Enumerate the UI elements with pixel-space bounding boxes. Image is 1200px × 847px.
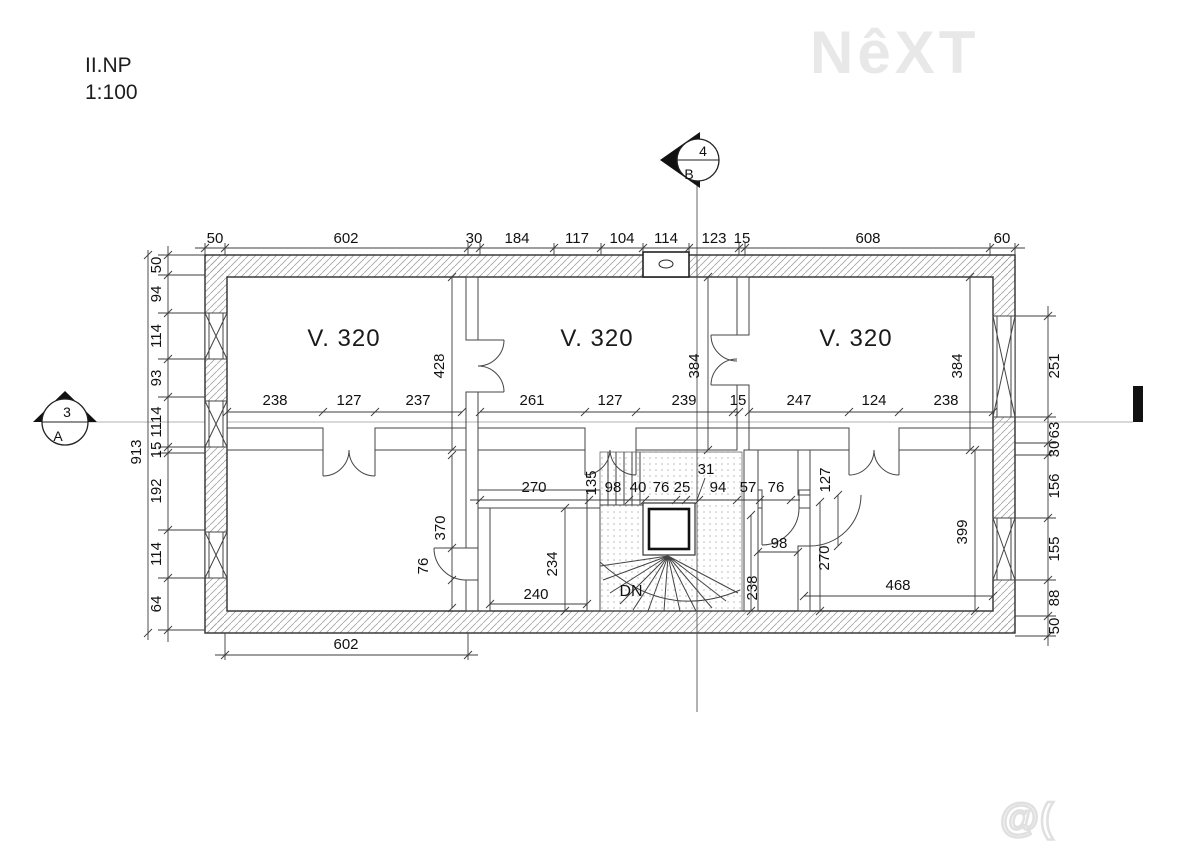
section-number: 3 [63, 404, 71, 420]
dim-label: 93 [148, 370, 165, 387]
dim-label: 15 [730, 392, 747, 409]
room-label: V. 320 [307, 325, 380, 352]
dim-label: 399 [954, 519, 971, 544]
window-left-3 [205, 532, 227, 578]
room-3: V. 320 247 124 238 384 [745, 273, 997, 454]
dim-label: 60 [994, 230, 1011, 247]
dim-label: 270 [521, 479, 546, 496]
window-right-1 [993, 316, 1015, 417]
door-room1-room2 [478, 340, 504, 392]
dim-label: 468 [885, 577, 910, 594]
dim-chain-right: 251 63 30 156 155 88 50 [1015, 306, 1063, 646]
dim-label: 31 [698, 461, 715, 478]
dim-label: 238 [744, 575, 761, 600]
dim-label: 270 [816, 545, 833, 570]
dim-label: 114 [148, 324, 165, 348]
dim-label: 602 [333, 636, 358, 653]
dim-label: 25 [674, 479, 691, 496]
dim-small-room: 370 76 240 234 [415, 451, 591, 615]
dim-label: 608 [855, 230, 880, 247]
dim-label: 1114 [148, 406, 165, 437]
dim-label: 76 [653, 479, 670, 496]
dim-chain-top: 50 602 30 184 117 104 114 123 15 608 60 [195, 230, 1025, 255]
dim-label: 240 [523, 586, 548, 603]
dim-label: 127 [597, 392, 622, 409]
dim-label: 261 [519, 392, 544, 409]
door-room3 [849, 450, 899, 475]
section-marker-3a: 3 A [33, 391, 97, 445]
dim-label: 155 [1046, 536, 1063, 561]
dim-label: 114 [148, 542, 165, 566]
dim-label: 184 [504, 230, 529, 247]
dim-label: 30 [466, 230, 483, 247]
dim-label: 135 [583, 470, 600, 495]
chimney [643, 252, 689, 277]
section-letter: B [684, 166, 693, 182]
dim-label: 117 [565, 230, 589, 247]
dim-label: 57 [740, 479, 757, 496]
dim-label: 98 [771, 535, 788, 552]
room-label: V. 320 [819, 325, 892, 352]
room-label: V. 320 [560, 325, 633, 352]
dim-label: 15 [148, 442, 165, 459]
dim-label: 94 [710, 479, 727, 496]
dim-label: 63 [1046, 422, 1063, 439]
window-right-2 [993, 518, 1015, 580]
dim-label: 156 [1046, 473, 1063, 498]
dim-label: 251 [1046, 353, 1063, 378]
room-2: V. 320 261 127 239 15 384 [476, 273, 746, 454]
dim-label: 428 [431, 353, 448, 378]
dim-right-zone: 127 98 270 238 468 399 [744, 446, 997, 615]
door-right-room [810, 495, 861, 546]
dim-label: 76 [415, 558, 432, 575]
dim-label: 50 [1046, 618, 1063, 635]
dim-label: 237 [405, 392, 430, 409]
dim-label: 127 [817, 467, 834, 492]
window-left-2 [205, 401, 227, 447]
dim-label: 64 [148, 596, 165, 613]
dim-label: 384 [686, 353, 703, 378]
dim-label: 238 [262, 392, 287, 409]
staircase: DN [600, 452, 742, 611]
window-left-1 [205, 313, 227, 359]
dim-label: 98 [605, 479, 622, 496]
dim-label: 114 [654, 230, 678, 247]
dim-label: 15 [734, 230, 751, 247]
dim-label: 192 [148, 478, 165, 503]
section-letter: A [53, 428, 63, 444]
bazos-watermark: @( Bazos.cz [1000, 796, 1200, 847]
room-1: V. 320 238 127 237 428 [223, 273, 466, 454]
dim-label: 88 [1046, 590, 1063, 607]
section-end-marker [1133, 386, 1143, 422]
dim-label: 104 [609, 230, 634, 247]
dim-label: 50 [148, 257, 165, 274]
stair-down-label: DN [619, 583, 642, 600]
dim-label: 602 [333, 230, 358, 247]
floor-plan-page: II.NP 1:100 NêXT [0, 0, 1200, 847]
dim-label: 50 [207, 230, 224, 247]
dim-label: 370 [432, 515, 449, 540]
floor-plan-drawing: DN 4 B 3 A [0, 0, 1200, 847]
door-small-room [434, 548, 466, 580]
dim-label: 30 [1046, 441, 1063, 458]
dim-label: 40 [630, 479, 647, 496]
dim-label: 76 [768, 479, 785, 496]
dim-label: 127 [336, 392, 361, 409]
dim-chain-bottom: 602 [215, 633, 478, 660]
section-number: 4 [699, 143, 707, 159]
dim-label: 234 [544, 551, 561, 576]
dim-label: 384 [949, 353, 966, 378]
dim-label-overall: 913 [128, 439, 145, 464]
dim-label: 239 [671, 392, 696, 409]
dim-label: 124 [861, 392, 886, 409]
dim-label: 247 [786, 392, 811, 409]
door-room2-room3 [711, 335, 737, 385]
dim-label: 123 [701, 230, 726, 247]
dim-label: 238 [933, 392, 958, 409]
door-room1 [323, 450, 375, 476]
dim-chain-left: 50 94 114 93 1114 15 192 114 64 913 [128, 246, 205, 642]
dim-label: 94 [148, 286, 165, 303]
